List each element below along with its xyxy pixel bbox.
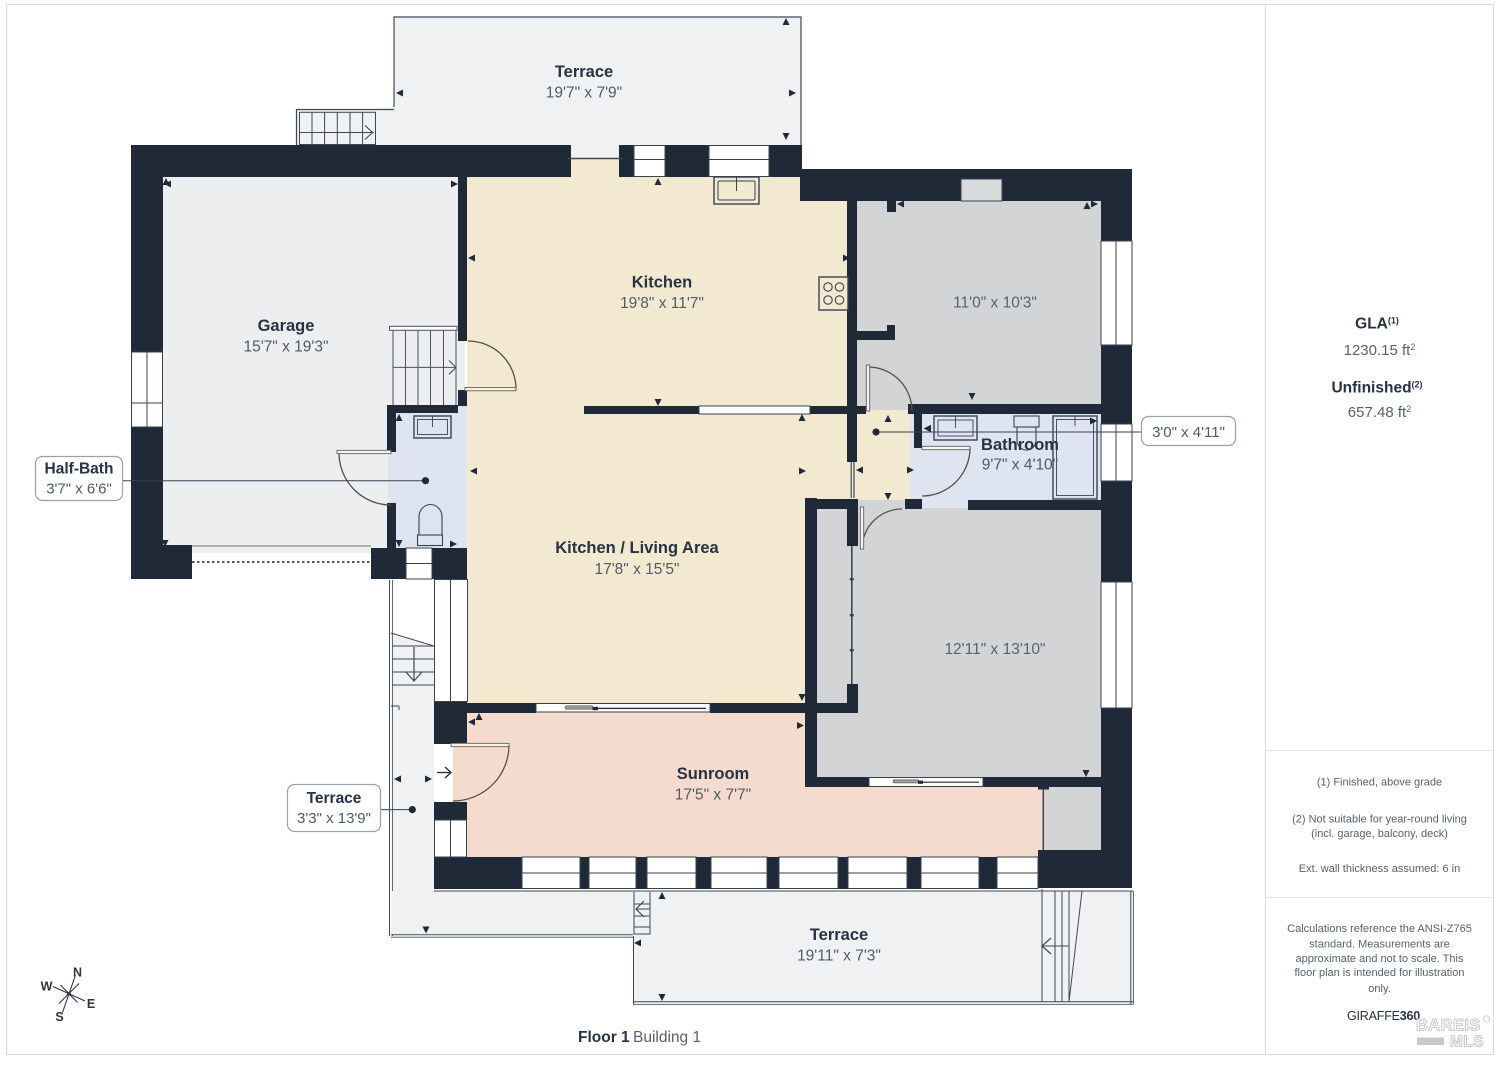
svg-text:15'7" x 19'3": 15'7" x 19'3"	[243, 339, 328, 356]
svg-text:3'7" x 6'6": 3'7" x 6'6"	[46, 481, 112, 498]
svg-text:N: N	[73, 966, 82, 980]
svg-text:Ext. wall thickness assumed: 6: Ext. wall thickness assumed: 6 in	[1299, 863, 1460, 875]
svg-text:Sunroom: Sunroom	[677, 765, 749, 783]
svg-text:Floor 1: Floor 1	[578, 1029, 630, 1046]
svg-text:Half-Bath: Half-Bath	[45, 461, 114, 478]
svg-text:Building 1: Building 1	[633, 1029, 701, 1046]
svg-text:GLA(1): GLA(1)	[1355, 316, 1399, 333]
svg-text:Bathroom: Bathroom	[981, 436, 1059, 454]
svg-text:Unfinished(2): Unfinished(2)	[1331, 380, 1422, 397]
svg-text:BAREIS: BAREIS	[1416, 1017, 1481, 1035]
svg-text:approximate and not to scale.: approximate and not to scale. This	[1296, 953, 1464, 965]
svg-text:Terrace: Terrace	[810, 926, 868, 944]
svg-text:Terrace: Terrace	[555, 63, 613, 81]
svg-text:Kitchen / Living Area: Kitchen / Living Area	[555, 539, 719, 557]
svg-text:3'3" x 13'9": 3'3" x 13'9"	[297, 810, 371, 827]
svg-text:(2) Not suitable for year-roun: (2) Not suitable for year-round living	[1292, 814, 1467, 826]
svg-text:17'8" x 15'5": 17'8" x 15'5"	[594, 561, 679, 578]
svg-text:3'0" x 4'11": 3'0" x 4'11"	[1152, 424, 1225, 441]
svg-text:9'7" x 4'10": 9'7" x 4'10"	[982, 457, 1058, 474]
svg-text:19'7" x 7'9": 19'7" x 7'9"	[546, 85, 622, 102]
svg-text:19'8" x 11'7": 19'8" x 11'7"	[620, 295, 704, 312]
svg-text:Garage: Garage	[258, 317, 315, 335]
svg-text:W: W	[41, 980, 53, 994]
svg-text:12'11" x 13'10": 12'11" x 13'10"	[944, 641, 1045, 658]
svg-text:floor plan is intended for ill: floor plan is intended for illustration	[1295, 967, 1465, 979]
svg-text:(incl. garage, balcony, deck): (incl. garage, balcony, deck)	[1311, 828, 1448, 840]
svg-text:657.48 ft2: 657.48 ft2	[1348, 404, 1411, 421]
svg-text:GIRAFFE360: GIRAFFE360	[1347, 1009, 1420, 1023]
svg-text:19'11" x 7'3": 19'11" x 7'3"	[797, 948, 881, 965]
svg-text:standard. Measurements are: standard. Measurements are	[1309, 939, 1450, 951]
svg-text:11'0" x 10'3": 11'0" x 10'3"	[953, 295, 1037, 312]
svg-text:MLS: MLS	[1450, 1034, 1484, 1051]
svg-text:only.: only.	[1368, 983, 1390, 995]
svg-text:Kitchen: Kitchen	[632, 274, 693, 292]
svg-text:17'5" x 7'7": 17'5" x 7'7"	[675, 787, 751, 804]
svg-text:E: E	[87, 997, 95, 1011]
svg-text:Calculations reference the ANS: Calculations reference the ANSI-Z765	[1287, 923, 1472, 935]
svg-text:S: S	[55, 1010, 63, 1024]
svg-text:Terrace: Terrace	[307, 790, 362, 807]
svg-text:(1) Finished, above grade: (1) Finished, above grade	[1317, 777, 1442, 789]
svg-text:1230.15 ft2: 1230.15 ft2	[1344, 342, 1416, 359]
